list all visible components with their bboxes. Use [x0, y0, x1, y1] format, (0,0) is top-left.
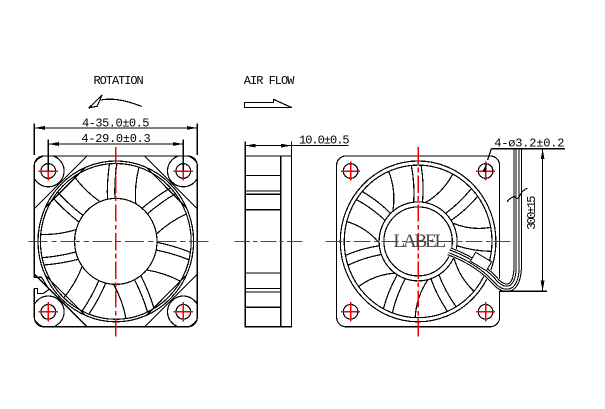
svg-text:AIR FLOW: AIR FLOW [244, 74, 295, 88]
svg-text:300±15: 300±15 [525, 196, 539, 230]
svg-text:LABEL: LABEL [393, 231, 445, 252]
svg-text:ROTATION: ROTATION [94, 74, 144, 88]
svg-text:4-29.0±0.3: 4-29.0±0.3 [81, 132, 150, 146]
svg-text:10.0±0.5: 10.0±0.5 [299, 133, 349, 147]
svg-text:4-35.0±0.5: 4-35.0±0.5 [82, 116, 149, 130]
